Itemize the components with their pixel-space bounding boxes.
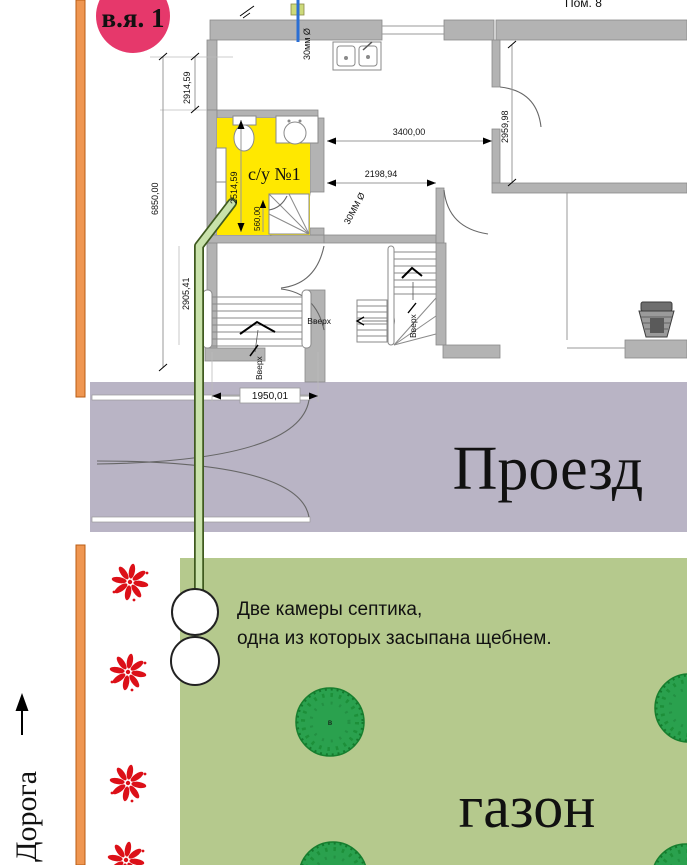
dim-2198: 2198,94 [365, 169, 398, 179]
dim-6850: 6850,00 [150, 182, 160, 215]
stairs-right: Вверх [388, 246, 436, 345]
badge-vya1: в.я. 1 [96, 0, 170, 53]
kitchen-sink-icon [333, 42, 381, 70]
dim-2905: 2905,41 [181, 277, 191, 310]
dim-2959: 2959,98 [500, 110, 510, 143]
dim-1950: 1950,01 [252, 391, 289, 402]
septic-chamber-2 [171, 637, 219, 685]
partial-room-label: Пом. 8 [565, 0, 602, 10]
stove-icon [639, 302, 674, 337]
septic-note-line1: Две камеры септика, [237, 599, 422, 620]
dim-3400: 3400,00 [393, 127, 426, 137]
toilet-icon [233, 116, 256, 151]
stairs-up-label: Вверх [254, 356, 264, 380]
septic-chamber-1 [172, 589, 218, 635]
bush-icon [107, 841, 144, 865]
dim-pipe-mid: 30ММ Ø [342, 191, 367, 226]
bush-icon [109, 653, 146, 691]
road: Дорога [10, 693, 43, 862]
bathroom-label: с/у №1 [248, 164, 301, 184]
road-direction-arrow [16, 693, 29, 735]
stairs-up-label: Вверх [408, 314, 418, 338]
septic-note-line2: одна из которых засыпана щебнем. [237, 628, 552, 649]
dim-2514: 2514,59 [229, 171, 239, 204]
stairs-up-label: Вверх [307, 316, 331, 326]
bush-icon [109, 764, 146, 802]
washbasin-icon [276, 116, 318, 144]
tree-icon [296, 688, 364, 756]
badge-label: в.я. 1 [102, 3, 165, 33]
stairs-left: Вверх [203, 290, 311, 380]
bush-icon [111, 563, 148, 601]
lawn-label: газон [459, 774, 596, 840]
dim-2914: 2914,59 [182, 71, 192, 104]
site-plan: в [0, 0, 687, 865]
dim-560: 560,00 [253, 206, 262, 231]
shower-icon [269, 194, 309, 234]
dim-pipe-top: 30мм Ø [302, 28, 312, 60]
road-label: Дорога [10, 771, 43, 862]
fence-strip [76, 0, 85, 865]
driveway-label: Проезд [453, 435, 644, 503]
